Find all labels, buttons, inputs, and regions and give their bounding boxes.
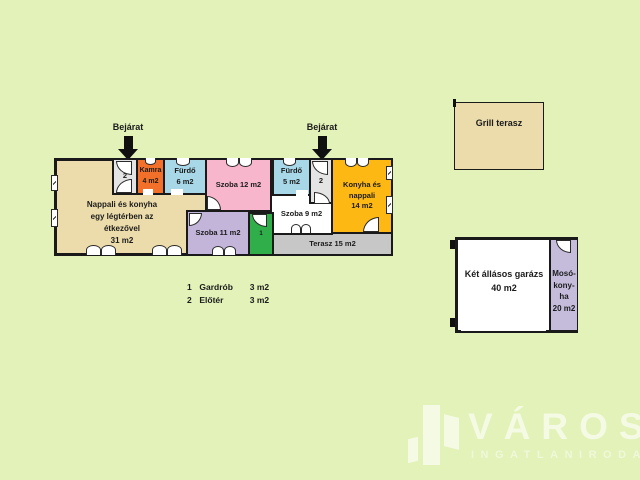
floorplan-image: Bejárat Bejárat Terasz 15 m2 Szoba 9 m2 … (0, 0, 640, 480)
window-icon (176, 158, 190, 166)
room-living-label: Nappali és konyha egy légtérben az étkez… (60, 199, 184, 247)
down-arrow-icon (118, 136, 138, 160)
window-icon (145, 158, 156, 165)
wall-tick (453, 99, 456, 107)
room-bathroom-6-name: Fürdő (174, 166, 195, 177)
entrance-label-left: Bejárat (96, 122, 160, 132)
double-door-icon (212, 246, 236, 255)
room-kitchen-living-line1: Konyha és (343, 180, 381, 191)
room-bedroom-11-label: Szoba 11 m2 (195, 228, 240, 239)
double-window-icon (345, 158, 369, 167)
legend-row: 2 Előtér 3 m2 (187, 294, 269, 307)
room-hall-2-number: 2 (319, 176, 323, 187)
door-opening (171, 189, 183, 195)
room-laundry: Mosó- kony- ha 20 m2 (549, 240, 577, 330)
legend-row: 1 Gardrób 3 m2 (187, 281, 269, 294)
room-wardrobe-number: 1 (259, 230, 262, 239)
room-kitchen-living-area: 14 m2 (351, 201, 372, 212)
double-door-icon (86, 245, 116, 255)
window-icon (386, 166, 393, 180)
window-icon (51, 209, 58, 227)
window-icon (386, 196, 393, 214)
down-arrow-icon (312, 136, 332, 160)
legend: 1 Gardrób 3 m2 2 Előtér 3 m2 (187, 281, 269, 307)
room-bathroom-5-name: Fürdő (281, 166, 302, 177)
double-window-icon (226, 158, 252, 167)
door-opening (296, 190, 308, 196)
garage-door-opening (461, 326, 546, 332)
room-terrace: Terasz 15 m2 (272, 232, 393, 256)
window-icon (283, 158, 296, 166)
room-pantry-name: Kamra (140, 166, 162, 176)
door-opening (143, 189, 153, 195)
logo-title: VÁROSI (468, 406, 640, 448)
window-icon (51, 175, 58, 191)
room-bedroom-9-label: Szoba 9 m2 (281, 209, 322, 220)
building-icon (408, 437, 418, 463)
grill-terrace-label: Grill terasz (476, 117, 523, 130)
room-pantry-area: 4 m2 (143, 177, 159, 187)
logo-subtitle: INGATLANIRODA (471, 449, 640, 461)
grill-terrace: Grill terasz (454, 102, 544, 170)
room-bedroom-12-label: Szoba 12 m2 (216, 180, 261, 191)
room-kitchen-living: Konyha és nappali 14 m2 (331, 158, 393, 234)
building-icon (423, 405, 440, 465)
building-icon (444, 414, 459, 450)
entrance-label-right: Bejárat (290, 122, 354, 132)
room-kitchen-living-line2: nappali (349, 191, 375, 202)
double-door-icon (152, 245, 182, 255)
room-bathroom-6-area: 6 m2 (176, 177, 193, 188)
double-door-icon (291, 224, 311, 233)
room-terrace-label: Terasz 15 m2 (309, 239, 356, 250)
room-bathroom-5-area: 5 m2 (283, 177, 300, 188)
wall-tick (450, 240, 455, 249)
wall-tick (450, 318, 455, 327)
room-garage-label: Két állásos garázs 40 m2 (460, 268, 548, 295)
